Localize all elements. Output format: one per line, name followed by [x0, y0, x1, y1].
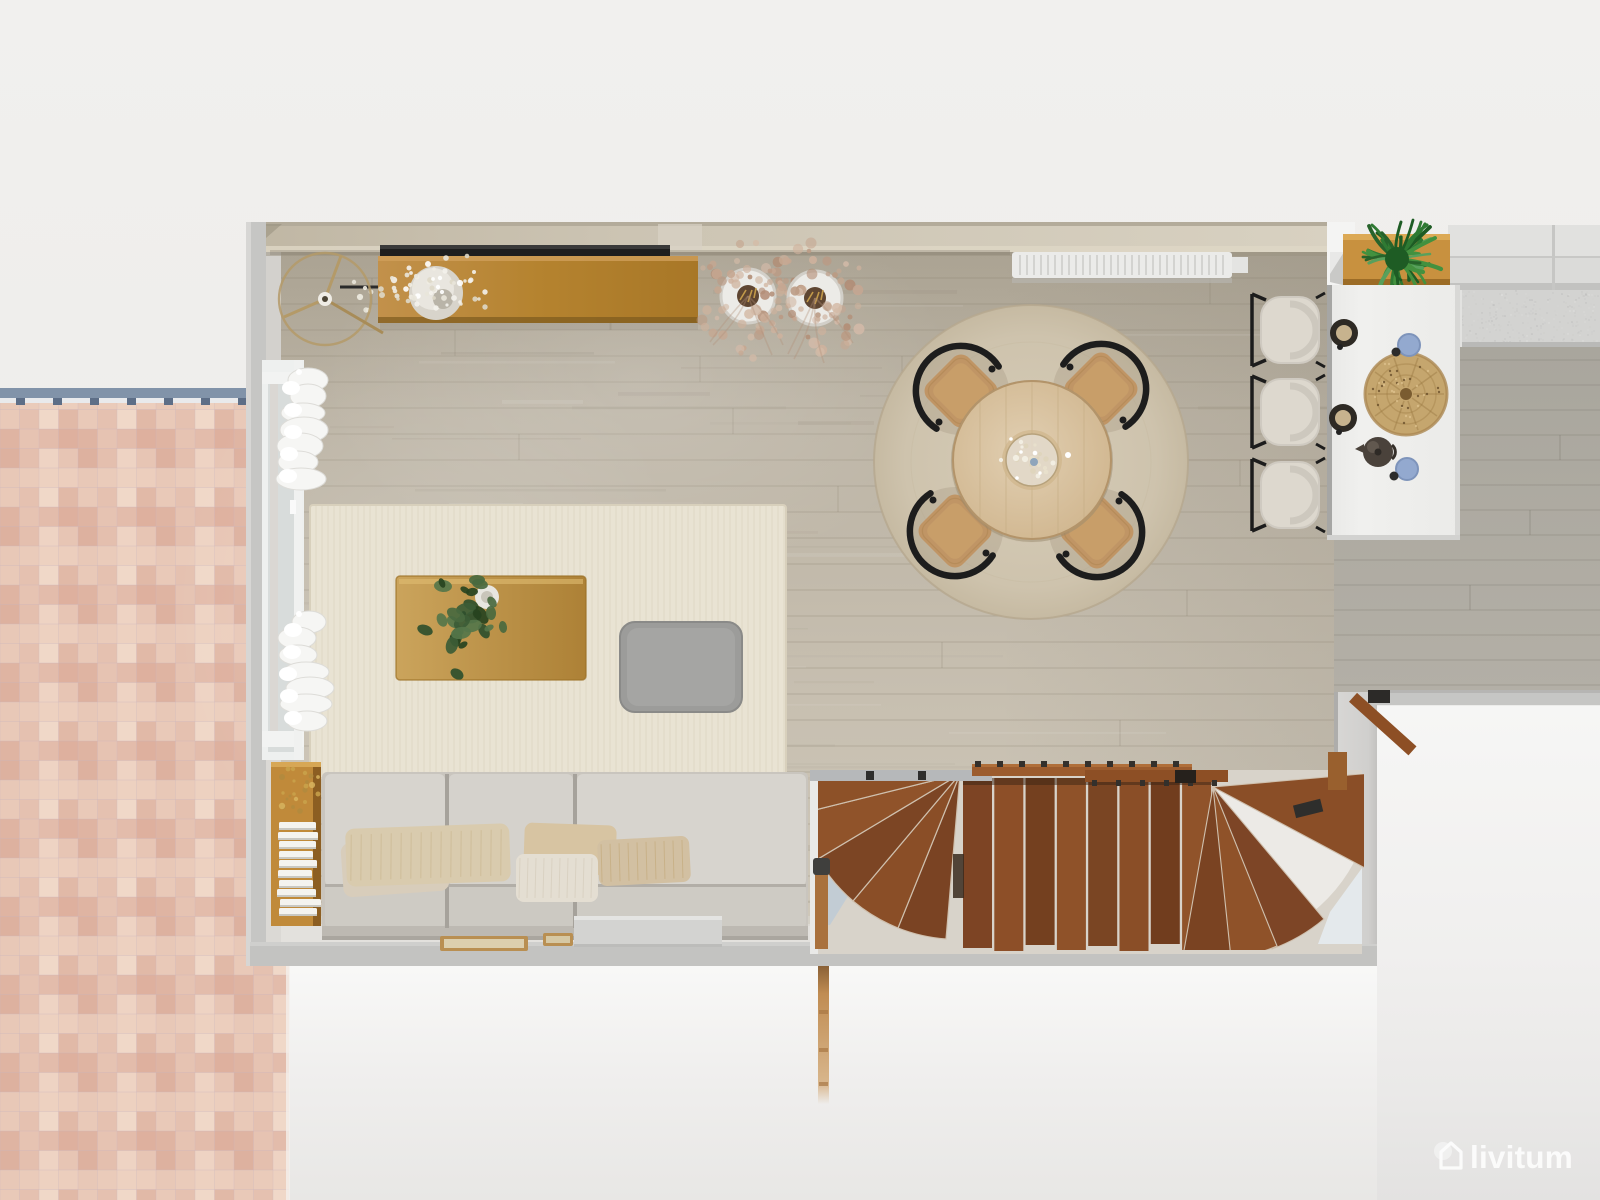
svg-text:livitum: livitum	[1470, 1139, 1573, 1175]
